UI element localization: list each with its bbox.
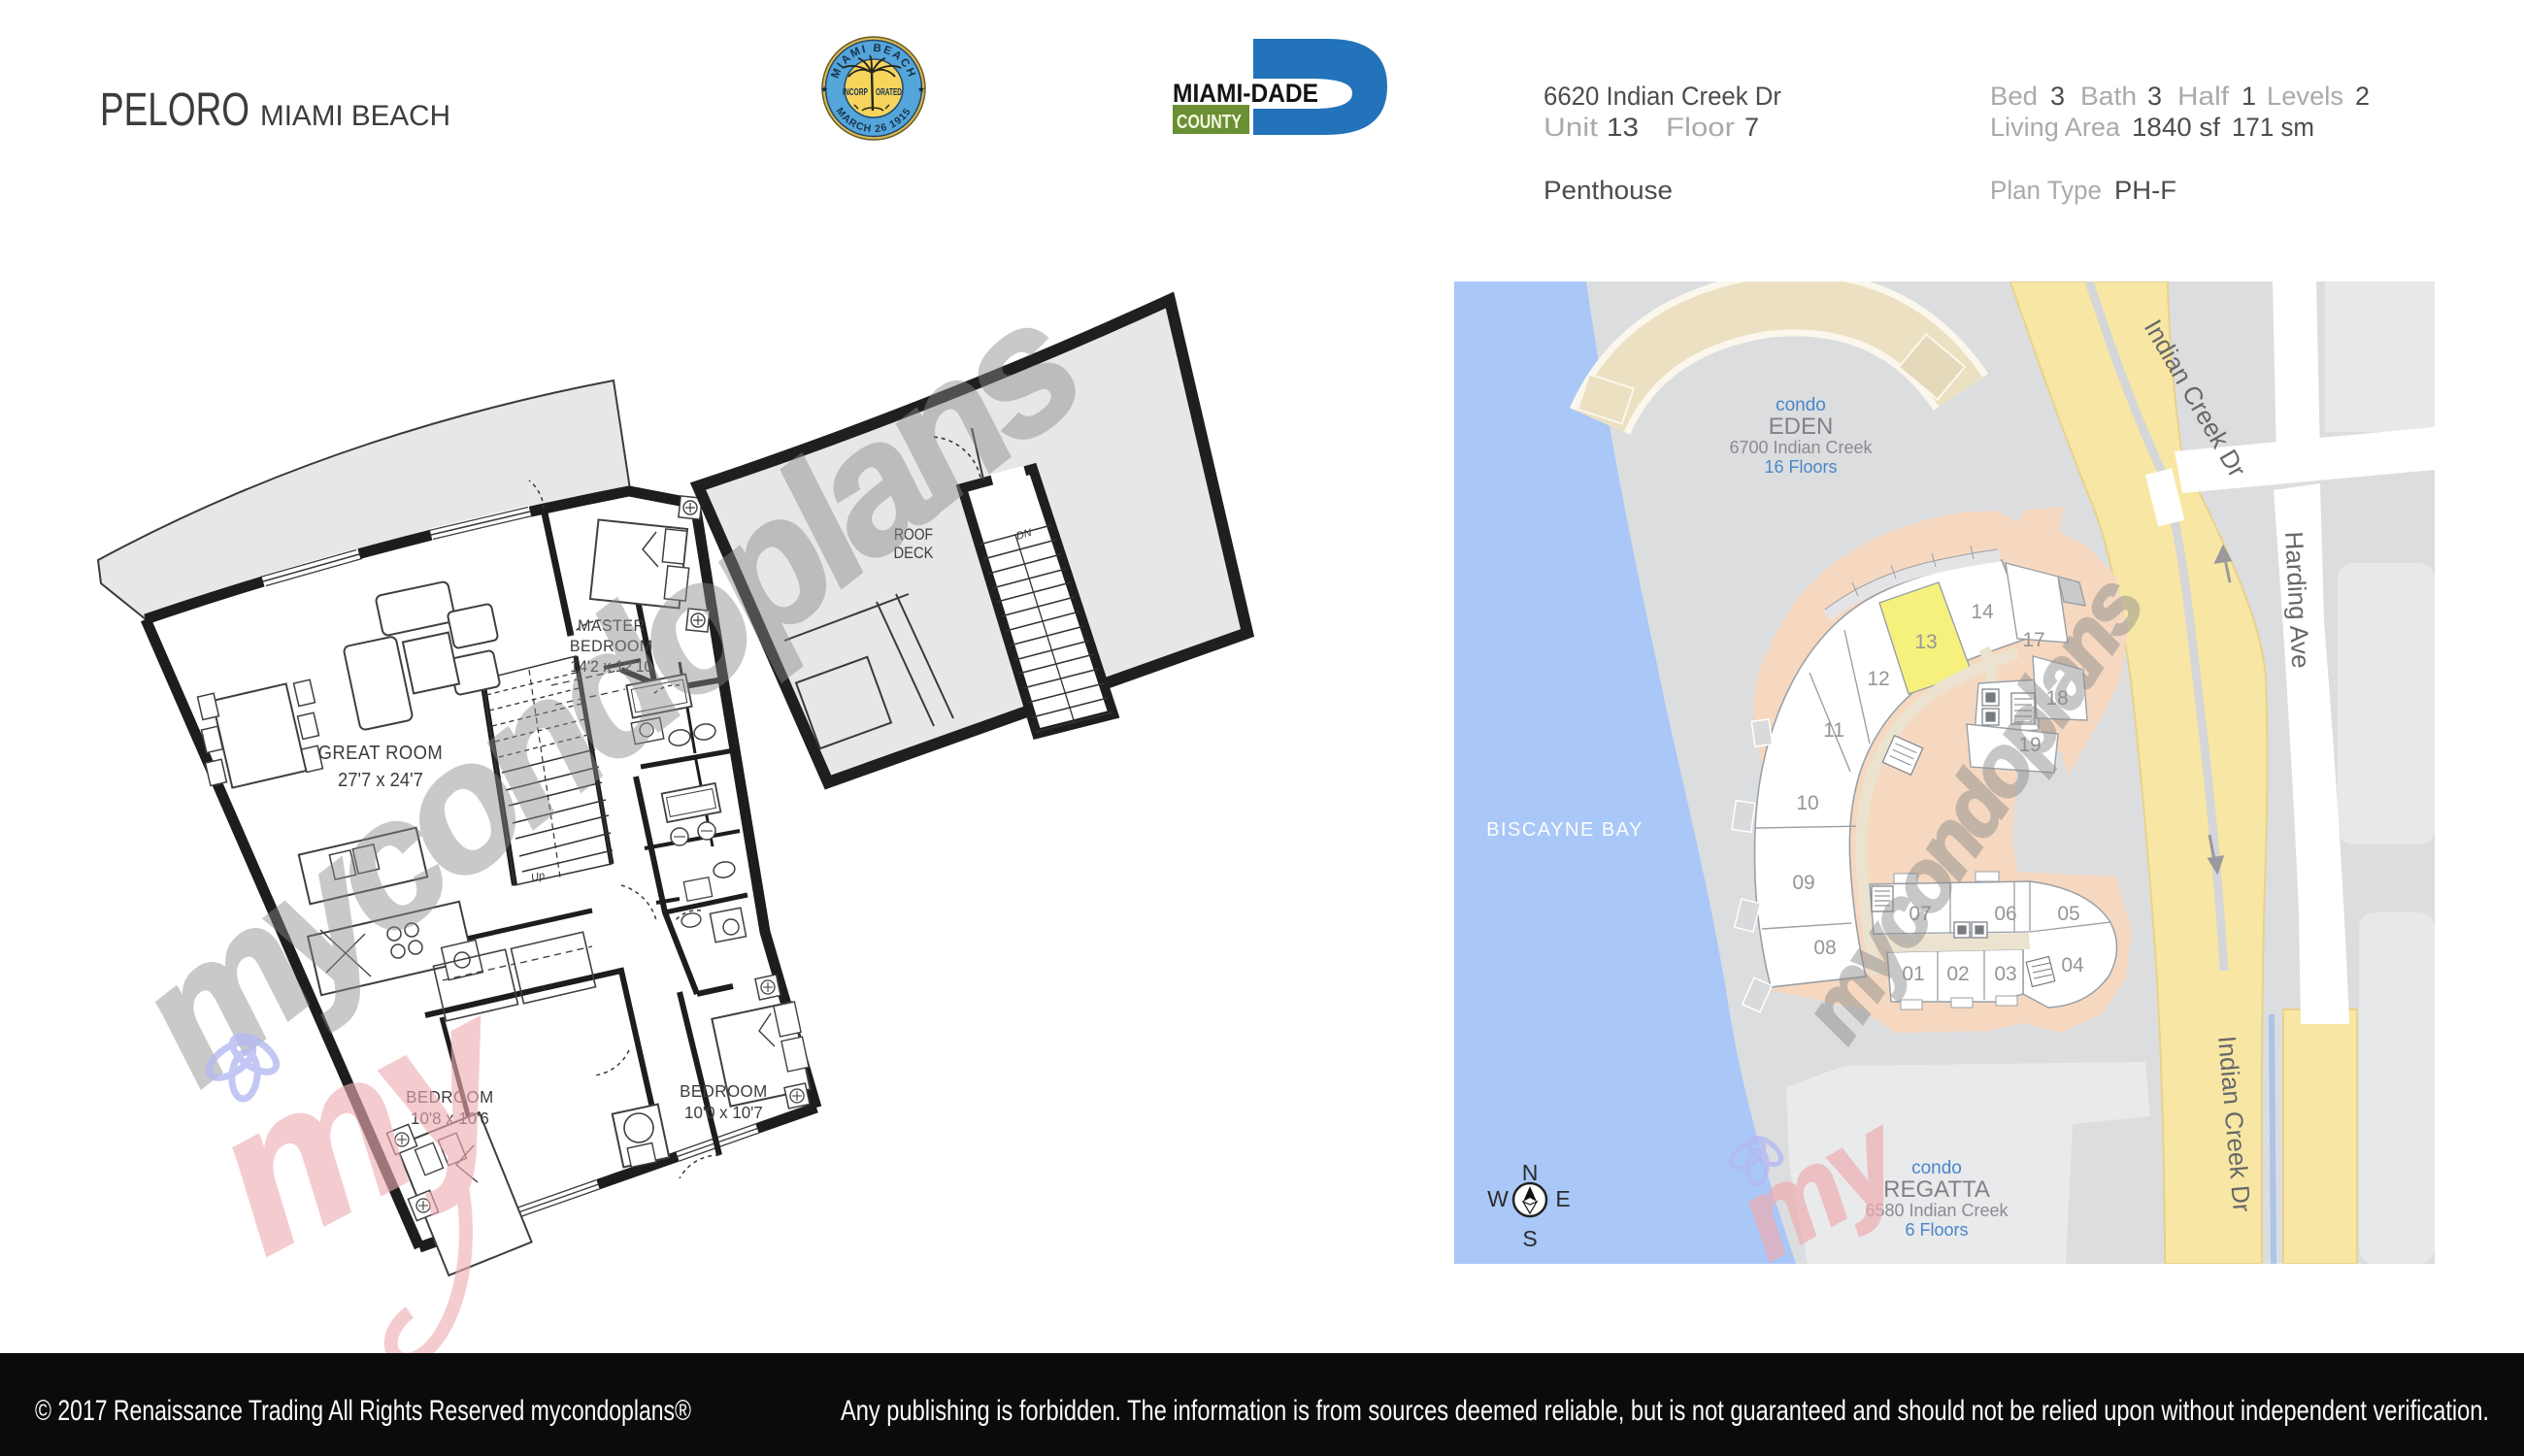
svg-text:14: 14 bbox=[1971, 601, 1994, 623]
svg-text:3: 3 bbox=[2147, 82, 2162, 111]
svg-text:Floor: Floor bbox=[1666, 113, 1735, 142]
svg-text:06: 06 bbox=[1994, 903, 2016, 925]
svg-text:★: ★ bbox=[917, 84, 925, 94]
svg-text:condo: condo bbox=[1911, 1158, 1962, 1178]
svg-text:ORATED: ORATED bbox=[876, 87, 902, 98]
svg-text:★: ★ bbox=[820, 84, 828, 94]
svg-text:Any publishing is forbidden.: Any publishing is forbidden. The informa… bbox=[841, 1395, 2489, 1427]
svg-text:11: 11 bbox=[1823, 719, 1844, 742]
svg-text:BEDROOM: BEDROOM bbox=[680, 1081, 768, 1102]
svg-text:Half: Half bbox=[2177, 82, 2230, 111]
svg-text:04: 04 bbox=[2061, 954, 2084, 976]
svg-text:3: 3 bbox=[2050, 82, 2065, 111]
svg-text:05: 05 bbox=[2057, 903, 2079, 925]
svg-text:10'0 x 10'7: 10'0 x 10'7 bbox=[684, 1103, 763, 1123]
svg-text:1: 1 bbox=[2242, 82, 2256, 111]
svg-text:BISCAYNE BAY: BISCAYNE BAY bbox=[1486, 819, 1644, 841]
svg-text:E: E bbox=[1555, 1186, 1570, 1211]
svg-text:PELORO: PELORO bbox=[100, 84, 249, 136]
svg-text:Living Area: Living Area bbox=[1990, 113, 2121, 142]
svg-text:13: 13 bbox=[1914, 631, 1937, 653]
svg-text:2: 2 bbox=[2355, 82, 2370, 111]
svg-text:16 Floors: 16 Floors bbox=[1764, 457, 1837, 477]
svg-text:MIAMI-DADE: MIAMI-DADE bbox=[1173, 79, 1318, 108]
svg-text:COUNTY: COUNTY bbox=[1177, 112, 1243, 133]
svg-text:Bath: Bath bbox=[2080, 82, 2137, 111]
svg-text:© 2017 Renaissance Trading A: © 2017 Renaissance Trading All Rights Re… bbox=[35, 1395, 691, 1427]
svg-text:7: 7 bbox=[1744, 113, 1759, 142]
svg-text:Plan Type: Plan Type bbox=[1990, 176, 2102, 205]
svg-text:EDEN: EDEN bbox=[1769, 414, 1834, 440]
svg-text:02: 02 bbox=[1946, 963, 1969, 985]
svg-text:6700 Indian Creek: 6700 Indian Creek bbox=[1729, 438, 1873, 457]
svg-text:171 sm: 171 sm bbox=[2232, 113, 2314, 142]
svg-text:12: 12 bbox=[1867, 668, 1889, 690]
svg-text:condo: condo bbox=[1776, 395, 1826, 415]
svg-text:Bed: Bed bbox=[1990, 82, 2038, 111]
svg-text:03: 03 bbox=[1994, 963, 2016, 985]
svg-text:13: 13 bbox=[1607, 113, 1639, 142]
svg-text:INCORP: INCORP bbox=[843, 87, 868, 98]
svg-text:Unit: Unit bbox=[1544, 113, 1599, 142]
svg-text:MIAMI BEACH: MIAMI BEACH bbox=[260, 100, 450, 132]
svg-text:1840 sf: 1840 sf bbox=[2132, 113, 2221, 142]
svg-text:09: 09 bbox=[1792, 872, 1814, 894]
svg-text:10: 10 bbox=[1796, 792, 1818, 814]
svg-text:N: N bbox=[1522, 1160, 1539, 1185]
svg-text:6 Floors: 6 Floors bbox=[1905, 1220, 1968, 1240]
svg-text:6620 Indian Creek Dr: 6620 Indian Creek Dr bbox=[1544, 82, 1781, 111]
svg-text:S: S bbox=[1522, 1226, 1537, 1251]
svg-text:Penthouse: Penthouse bbox=[1544, 176, 1673, 205]
svg-text:PH-F: PH-F bbox=[2114, 176, 2176, 205]
svg-text:Levels: Levels bbox=[2267, 82, 2343, 111]
svg-text:W: W bbox=[1487, 1186, 1509, 1211]
